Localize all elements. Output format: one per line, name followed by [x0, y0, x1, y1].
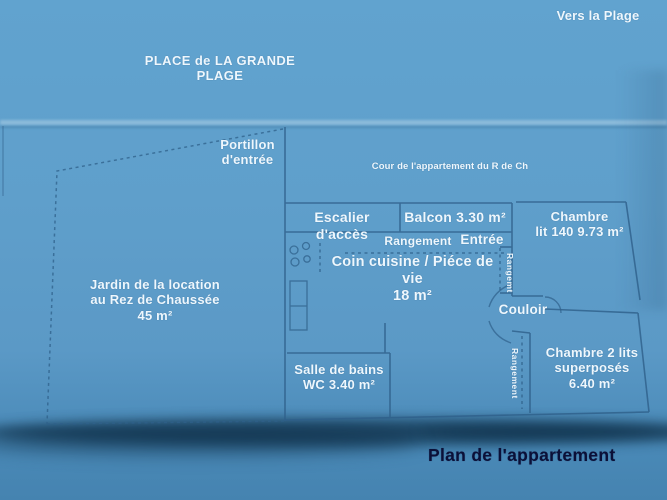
label-chambre-2-lits: Chambre 2 lits superposés 6.40 m²: [532, 345, 652, 391]
wall-couloir-bottom: [512, 331, 530, 333]
photo-caption-plan-appartement: Plan de l'appartement: [428, 445, 658, 466]
stove-burner-icon: [291, 258, 299, 266]
label-salle-de-bains: Salle de bains WC 3.40 m²: [283, 362, 395, 393]
garden-dashed-bottom: [47, 421, 285, 424]
label-rangement-couloir-vertical: Rangement: [504, 338, 519, 408]
label-vers-la-plage: Vers la Plage: [547, 8, 649, 23]
label-portillon-entree: Portillon d'entrée: [205, 137, 290, 168]
wall-bottom: [285, 412, 649, 420]
label-entree: Entrée: [452, 232, 512, 248]
label-couloir: Couloir: [492, 302, 554, 318]
label-place-grande-plage: PLACE de LA GRANDE PLAGE: [120, 53, 320, 84]
stove-burner-icon: [304, 256, 310, 262]
label-cour-appartement: Cour de l'appartement du R de Ch: [357, 161, 543, 172]
wall-chambre2-top: [545, 309, 638, 313]
label-chambre-lit-140: Chambre lit 140 9.73 m²: [517, 209, 642, 240]
label-coin-cuisine: Coin cuisine / Piéce de vie 18 m²: [320, 254, 505, 305]
floorplan-photo: Vers la Plage PLACE de LA GRANDE PLAGE P…: [0, 0, 667, 500]
label-balcon: Balcon 3.30 m²: [401, 209, 509, 226]
kitchen-fixtures-icon: [290, 243, 310, 331]
label-jardin-location: Jardin de la location au Rez de Chaussée…: [65, 277, 245, 323]
stove-burner-icon: [290, 246, 298, 254]
floorplan-drawing: [0, 0, 667, 500]
stove-burner-icon: [303, 243, 310, 250]
